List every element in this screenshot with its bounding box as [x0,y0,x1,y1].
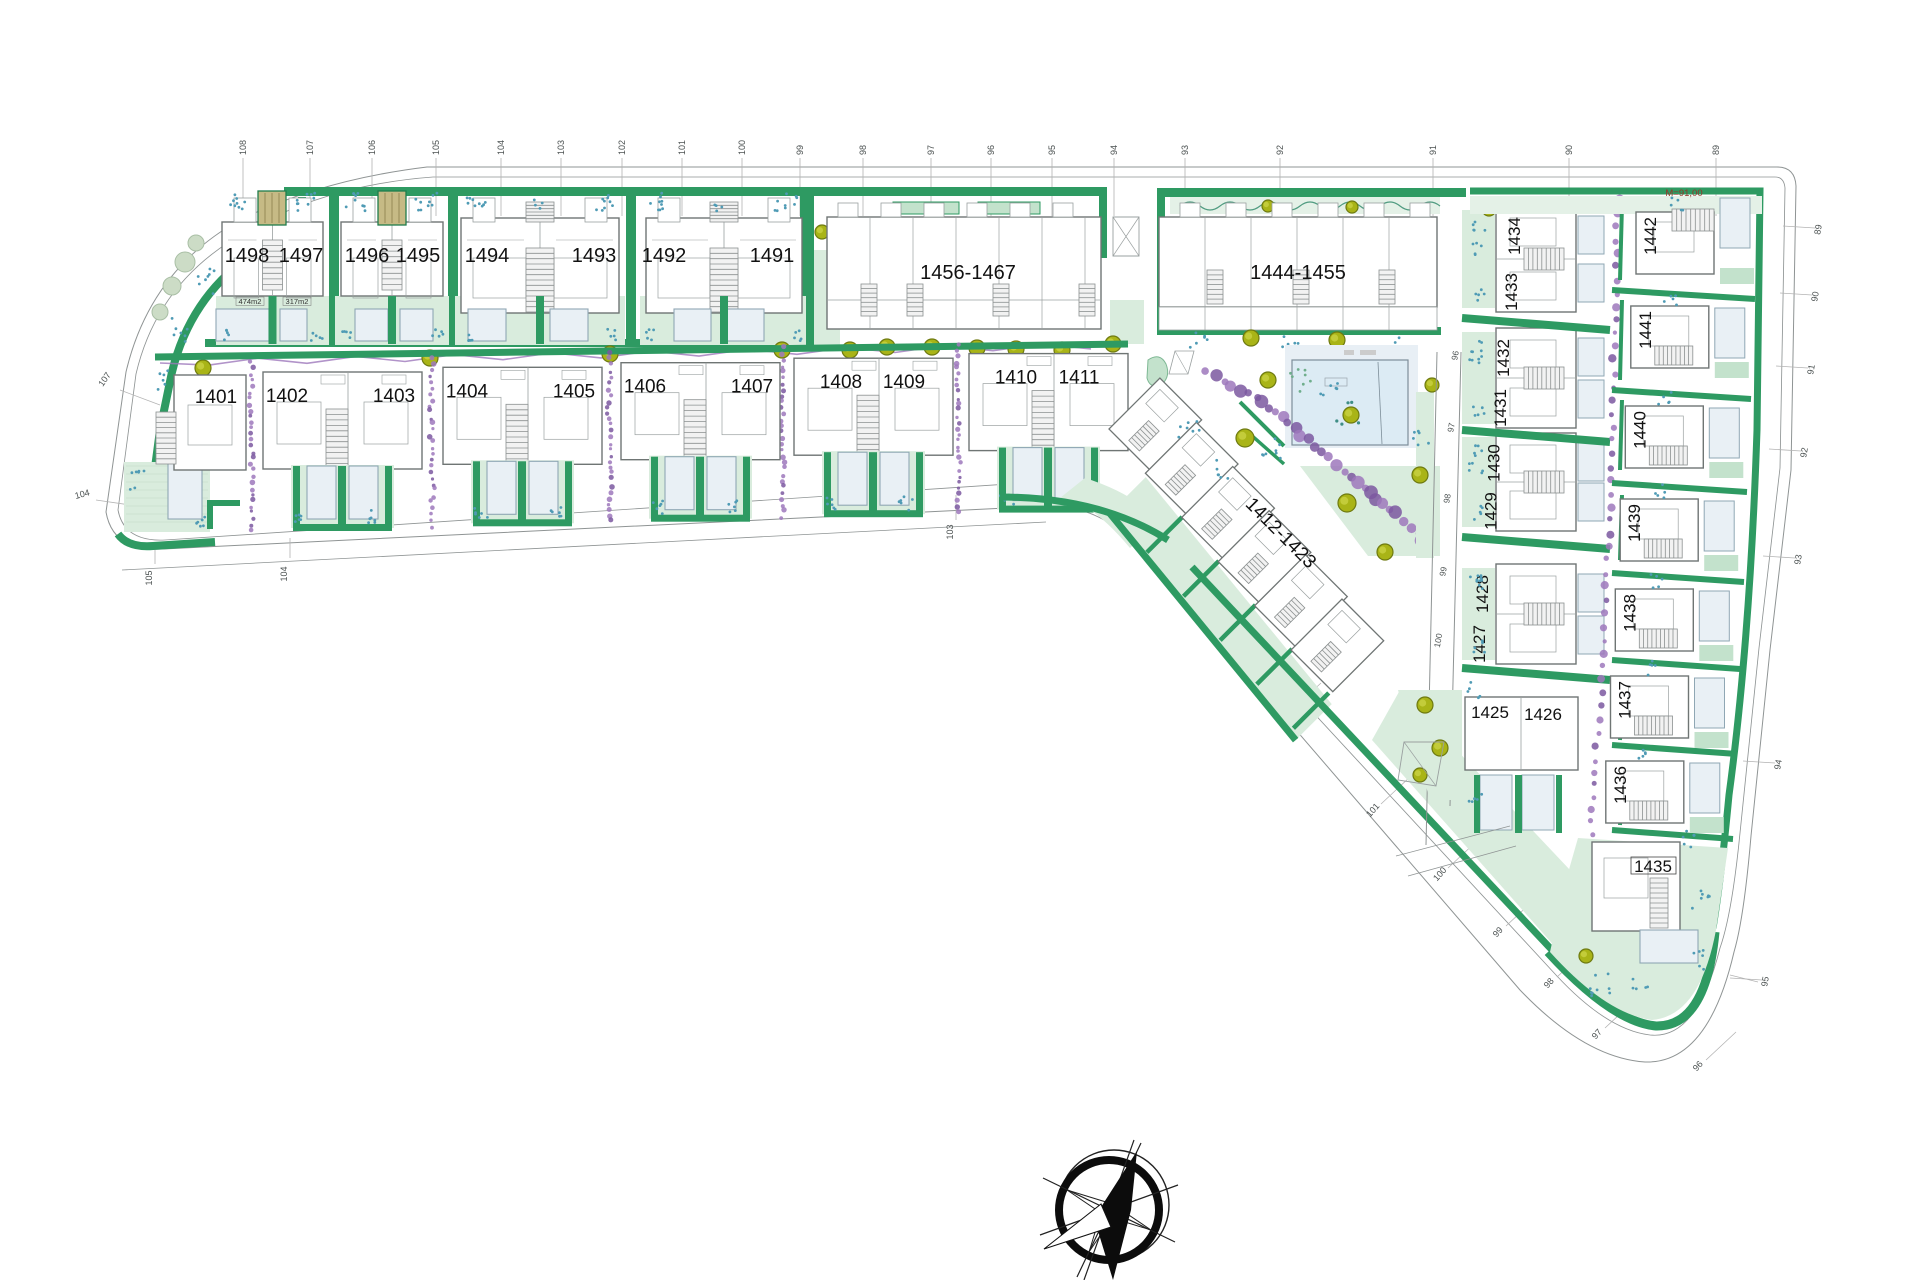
svg-text:91: 91 [1805,364,1817,376]
svg-text:92: 92 [1275,145,1285,155]
svg-text:1497: 1497 [279,245,324,267]
svg-text:1494: 1494 [465,245,510,267]
svg-text:1404: 1404 [446,381,489,402]
svg-text:1495: 1495 [396,245,441,267]
svg-text:103: 103 [556,140,566,155]
svg-text:100: 100 [737,140,747,155]
svg-text:104: 104 [496,140,506,155]
svg-text:1431: 1431 [1491,389,1510,427]
svg-text:1441: 1441 [1636,311,1655,349]
svg-text:96: 96 [986,145,996,155]
svg-text:106: 106 [367,140,377,155]
svg-text:1410: 1410 [995,368,1037,389]
svg-text:1405: 1405 [553,381,595,402]
svg-text:317m2: 317m2 [286,297,309,306]
svg-text:1438: 1438 [1620,594,1639,632]
svg-text:104: 104 [279,566,289,581]
svg-text:89: 89 [1812,224,1824,236]
svg-text:1427: 1427 [1470,625,1489,663]
svg-text:1432: 1432 [1494,339,1513,377]
svg-text:89: 89 [1711,145,1721,155]
svg-text:1430: 1430 [1485,444,1504,482]
svg-text:1491: 1491 [750,245,795,267]
svg-text:96: 96 [1449,350,1461,361]
svg-text:1492: 1492 [642,245,687,267]
svg-text:1434: 1434 [1505,217,1524,255]
svg-text:95: 95 [1759,976,1771,988]
svg-text:92: 92 [1798,447,1810,459]
svg-text:93: 93 [1180,145,1190,155]
svg-text:1456-1467: 1456-1467 [920,262,1016,284]
svg-text:1437: 1437 [1616,681,1635,719]
svg-text:97: 97 [1445,422,1457,433]
svg-text:101: 101 [677,140,687,155]
svg-text:1429: 1429 [1482,492,1501,530]
svg-text:102: 102 [617,140,627,155]
svg-text:90: 90 [1809,291,1821,303]
svg-text:105: 105 [144,570,154,585]
svg-text:97: 97 [926,145,936,155]
svg-text:1433: 1433 [1502,273,1521,311]
svg-text:1440: 1440 [1630,411,1649,449]
svg-text:474m2: 474m2 [239,297,262,306]
svg-text:1402: 1402 [266,386,308,407]
svg-text:103: 103 [945,524,955,539]
svg-text:1425: 1425 [1471,703,1509,722]
svg-text:1444-1455: 1444-1455 [1250,262,1346,284]
svg-text:1426: 1426 [1524,705,1562,724]
svg-text:1435: 1435 [1634,857,1672,876]
svg-text:1408: 1408 [820,372,862,393]
svg-text:1442: 1442 [1641,217,1660,255]
svg-text:99: 99 [795,145,805,155]
svg-text:95: 95 [1047,145,1057,155]
svg-text:1403: 1403 [373,386,415,407]
svg-text:99: 99 [1437,566,1449,577]
svg-text:107: 107 [305,140,315,155]
svg-text:1493: 1493 [572,245,617,267]
svg-text:1406: 1406 [624,377,666,398]
svg-text:1496: 1496 [345,245,390,267]
svg-text:108: 108 [238,140,248,155]
svg-text:1401: 1401 [195,387,237,408]
svg-text:94: 94 [1772,759,1784,771]
svg-text:1409: 1409 [883,372,925,393]
svg-text:98: 98 [1441,493,1453,504]
svg-text:98: 98 [858,145,868,155]
svg-text:1411: 1411 [1059,368,1100,389]
svg-text:1407: 1407 [731,377,773,398]
svg-text:1498: 1498 [225,245,270,267]
svg-text:105: 105 [431,140,441,155]
svg-text:93: 93 [1792,554,1804,566]
svg-text:1439: 1439 [1625,504,1644,542]
svg-text:91: 91 [1428,145,1438,155]
svg-text:94: 94 [1109,145,1119,155]
svg-text:90: 90 [1564,145,1574,155]
svg-text:1436: 1436 [1611,766,1630,804]
